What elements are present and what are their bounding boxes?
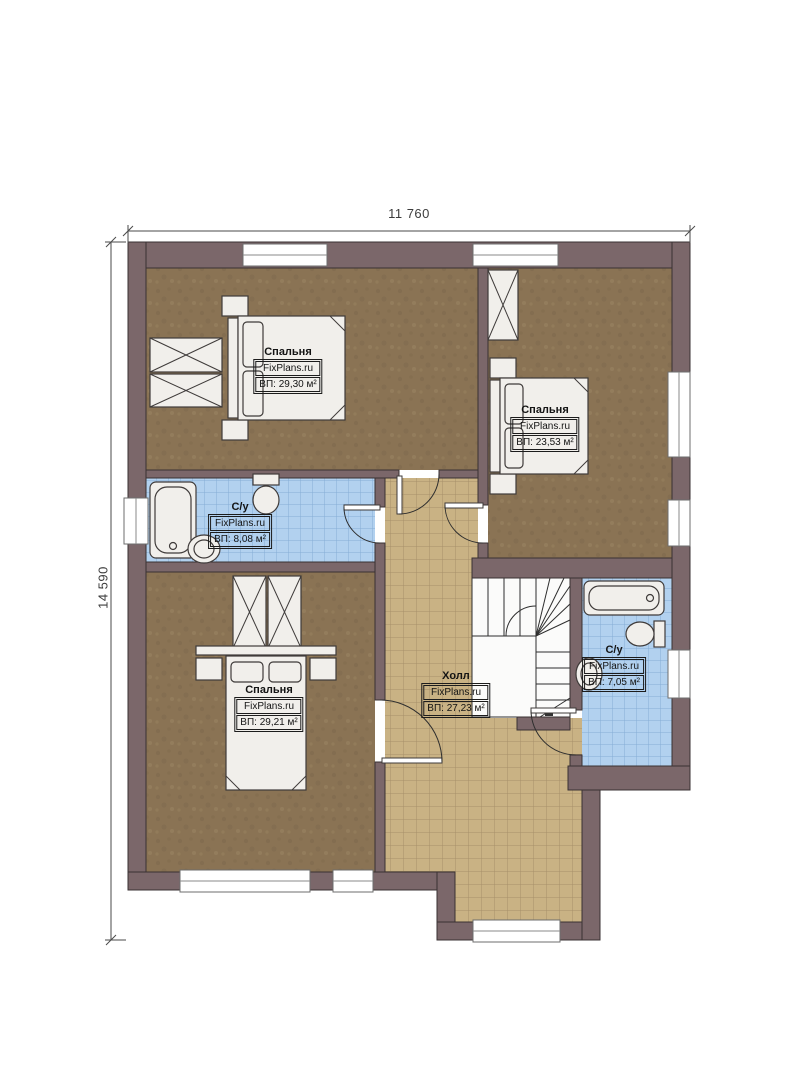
room-tag: FixPlans.ru ВП: 27,23 м² [421,683,490,718]
bathtub-bathroom-2 [584,581,664,615]
room-label-bedroom-3: Спальня FixPlans.ru ВП: 29,21 м² [234,684,303,732]
room-name: Спальня [253,346,322,358]
watermark-text: FixPlans.ru [584,659,644,674]
room-name: Спальня [510,404,579,416]
wall-bathroom2-left-b [570,755,582,766]
wall-top [128,242,690,268]
room-tag: FixPlans.ru ВП: 29,30 м² [253,359,322,394]
wall-extension-right [582,772,600,940]
hall-floor-wide [385,718,582,872]
room-area: ВП: 29,21 м² [236,715,301,730]
watermark-text: FixPlans.ru [236,699,301,714]
room-label-bedroom-2: Спальня FixPlans.ru ВП: 23,53 м² [510,404,579,452]
room-label-bedroom-1: Спальня FixPlans.ru ВП: 29,30 м² [253,346,322,394]
room-name: С/у [208,501,272,513]
wall-bedroom3-right-b [375,543,385,700]
room-label-bathroom-2: С/у FixPlans.ru ВП: 7,05 м² [582,644,646,692]
room-label-hall: Холл FixPlans.ru ВП: 27,23 м² [421,670,490,718]
room-name: Холл [421,670,490,682]
wall-bathroom2-left-a [570,578,582,710]
room-tag: FixPlans.ru ВП: 7,05 м² [582,657,646,692]
wall-bedroom2-bottom [472,558,672,578]
watermark-text: FixPlans.ru [210,516,270,531]
room-tag: FixPlans.ru ВП: 8,08 м² [208,514,272,549]
room-area: ВП: 23,53 м² [512,435,577,450]
wall-bathroom2-bottom [568,766,690,790]
dimension-height-label: 14 590 [96,538,111,638]
room-label-bathroom-1: С/у FixPlans.ru ВП: 8,08 м² [208,501,272,549]
room-name: С/у [582,644,646,656]
wardrobe-bedroom-1 [150,338,222,407]
room-area: ВП: 8,08 м² [210,532,270,547]
wall-bedroom3-right-a [375,478,385,507]
watermark-text: FixPlans.ru [423,685,488,700]
wall-bedroom1-right-b [478,543,488,558]
room-area: ВП: 27,23 м² [423,701,488,716]
room-tag: FixPlans.ru ВП: 29,21 м² [234,697,303,732]
dimension-width-label: 11 760 [359,206,459,221]
room-tag: FixPlans.ru ВП: 23,53 м² [510,417,579,452]
watermark-text: FixPlans.ru [512,419,577,434]
wall-bathroom1-bottom [146,562,385,572]
hall-floor-extension [455,872,582,922]
room-name: Спальня [234,684,303,696]
wall-left [128,242,146,890]
ventilation-shaft [488,270,518,340]
wall-bedroom1-bottom-b [439,470,478,478]
wall-under-stairs [517,717,570,730]
watermark-text: FixPlans.ru [255,361,320,376]
wall-bedroom1-right-a [478,268,488,505]
floor-plan-page: 11 760 14 590 Спальня FixPlans.ru ВП: 29… [0,0,792,1080]
wall-bedroom3-right-c [375,762,385,872]
room-area: ВП: 7,05 м² [584,675,644,690]
floor-plan-drawing [0,0,792,1080]
room-area: ВП: 29,30 м² [255,377,320,392]
